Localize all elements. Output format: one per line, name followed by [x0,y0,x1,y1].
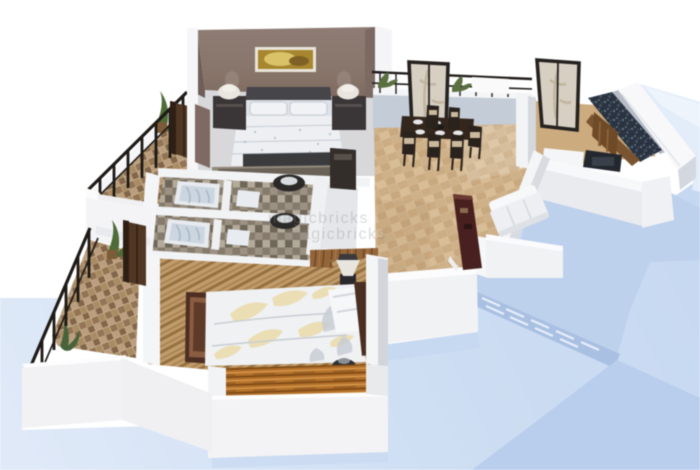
svg-text:magicbricks: magicbricks [268,210,369,227]
svg-text:magicbricks: magicbricks [286,226,387,243]
